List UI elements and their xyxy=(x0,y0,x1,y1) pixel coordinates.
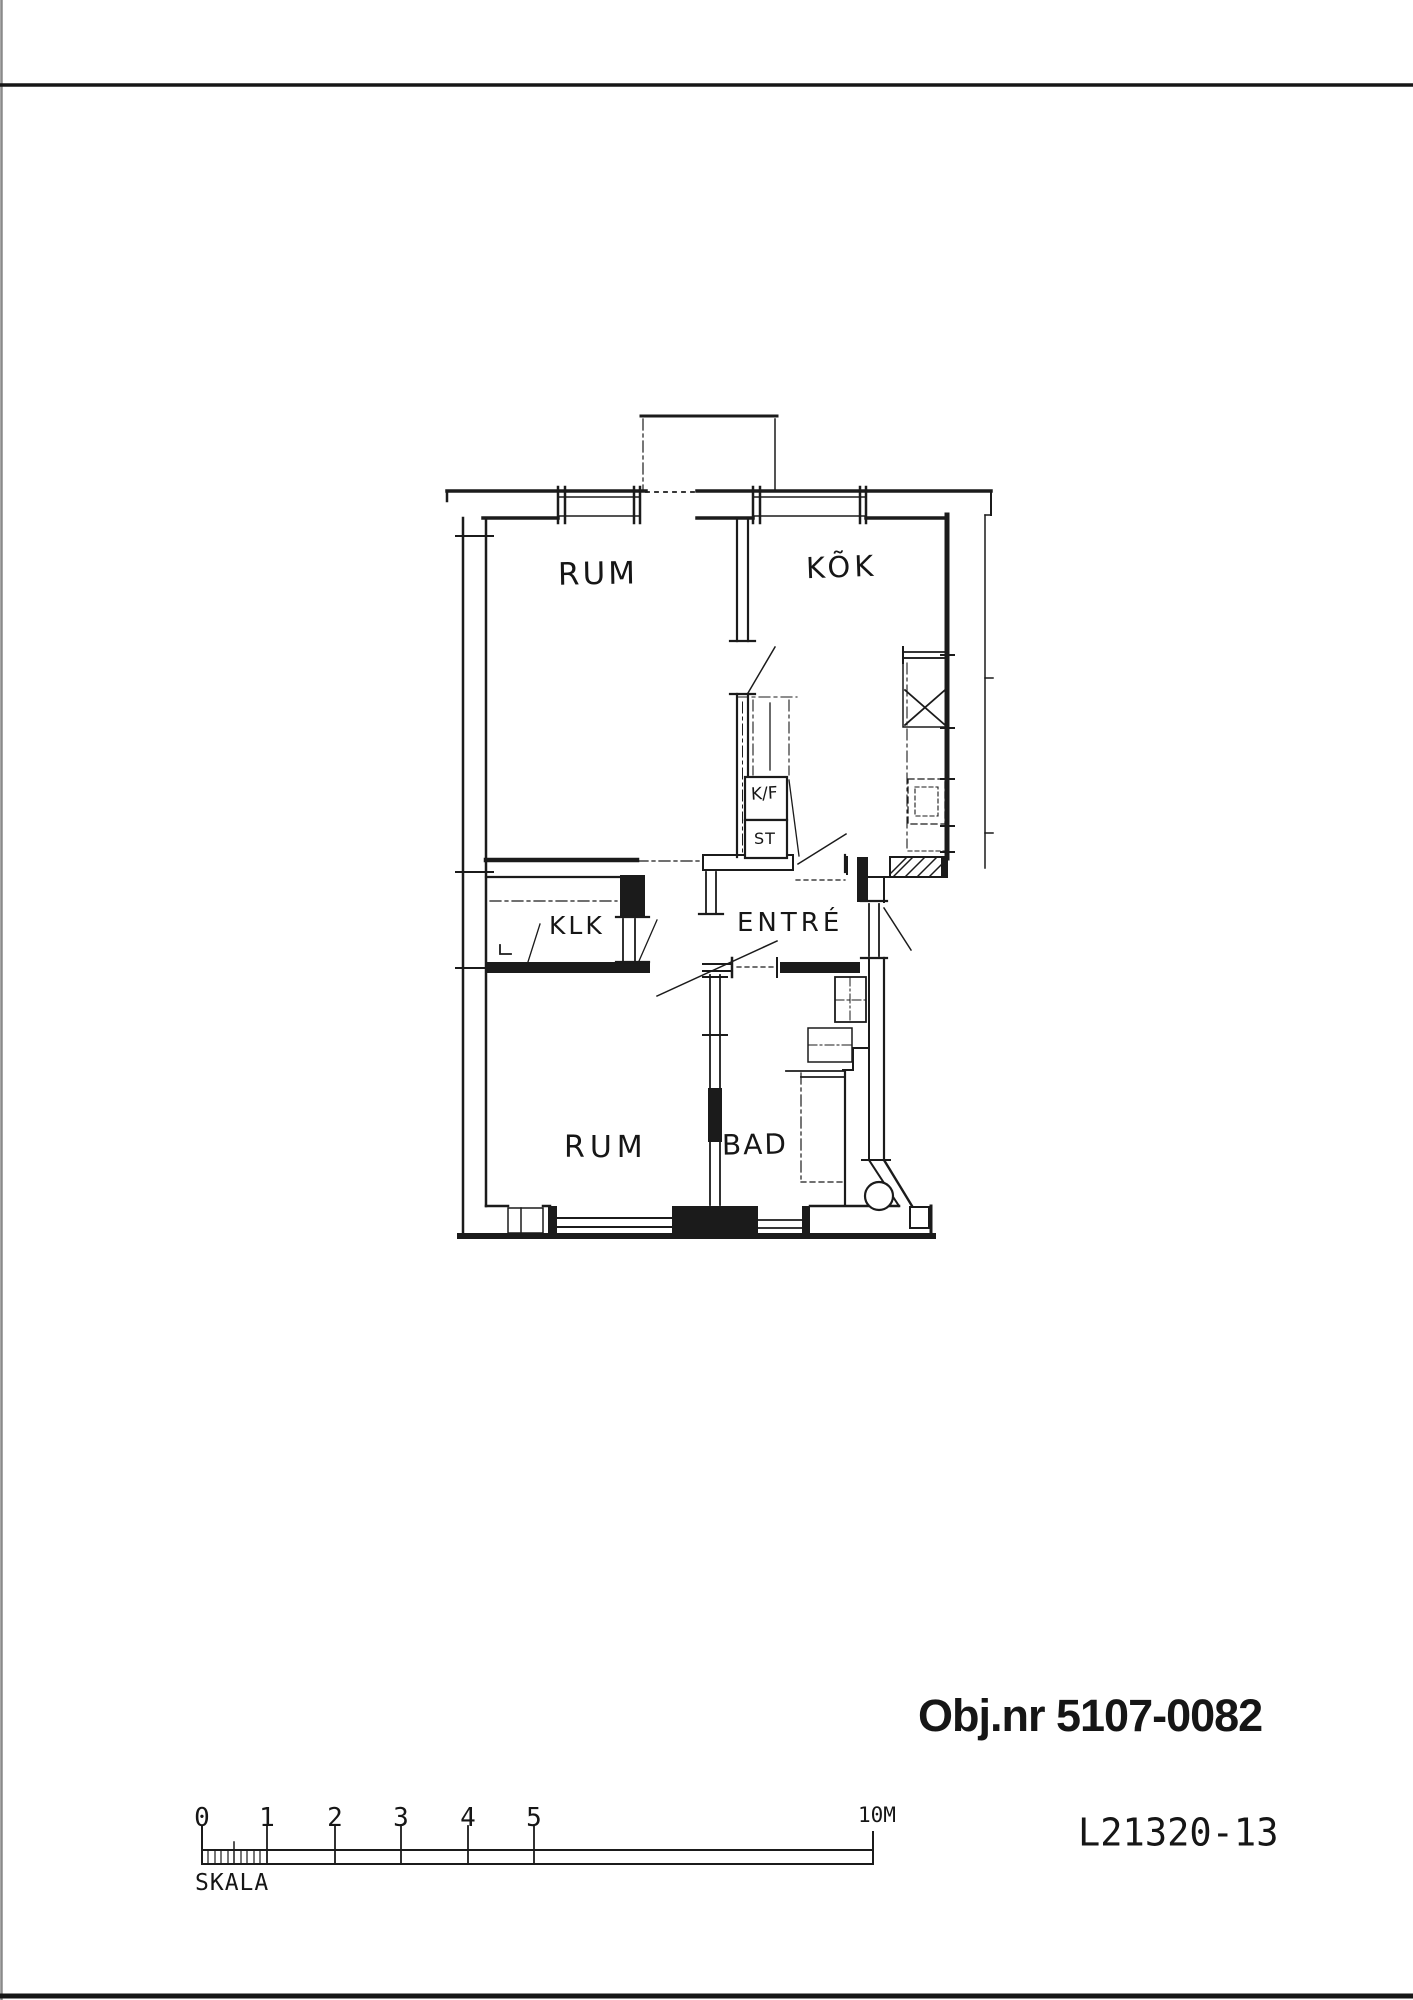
balcony xyxy=(641,416,777,489)
lower-rum-door-swing xyxy=(657,941,777,996)
plan-linework xyxy=(447,416,993,1238)
scale-end-label: 10M xyxy=(858,1803,896,1827)
divider-rum-bad xyxy=(703,975,727,1205)
fixture-label-st: ST xyxy=(754,829,776,848)
room-label-klk: KLK xyxy=(549,911,605,940)
room-label-kok: KÕK xyxy=(805,549,877,585)
scale-tick-5: 5 xyxy=(514,1803,554,1833)
scale-tick-1: 1 xyxy=(247,1803,287,1833)
room-label-entre: ENTRÉ xyxy=(737,908,843,938)
object-number: Obj.nr 5107-0082 xyxy=(918,1690,1262,1742)
scale-caption: SKALA xyxy=(195,1870,269,1896)
scale-tick-3: 3 xyxy=(381,1803,421,1833)
kitchen-door-swing xyxy=(798,834,846,864)
fixture-label-kf: K/F xyxy=(750,783,778,804)
vent-niche xyxy=(508,1208,543,1233)
room-label-bad: BAD xyxy=(722,1127,789,1161)
scanned-floorplan-page: RUM KÕK KLK ENTRÉ RUM BAD K/F ST Obj.nr … xyxy=(0,0,1413,2000)
wc-circle xyxy=(865,1182,893,1210)
scale-tick-2: 2 xyxy=(315,1803,355,1833)
drawing-number: L21320-13 xyxy=(1078,1810,1278,1855)
hatched-wall xyxy=(890,857,947,877)
scale-tick-4: 4 xyxy=(448,1803,488,1833)
room-label-rum-upper: RUM xyxy=(558,555,639,592)
scale-tick-0: 0 xyxy=(182,1803,222,1833)
room-label-rum-lower: RUM xyxy=(564,1130,648,1165)
bath-fixtures xyxy=(786,977,869,1205)
